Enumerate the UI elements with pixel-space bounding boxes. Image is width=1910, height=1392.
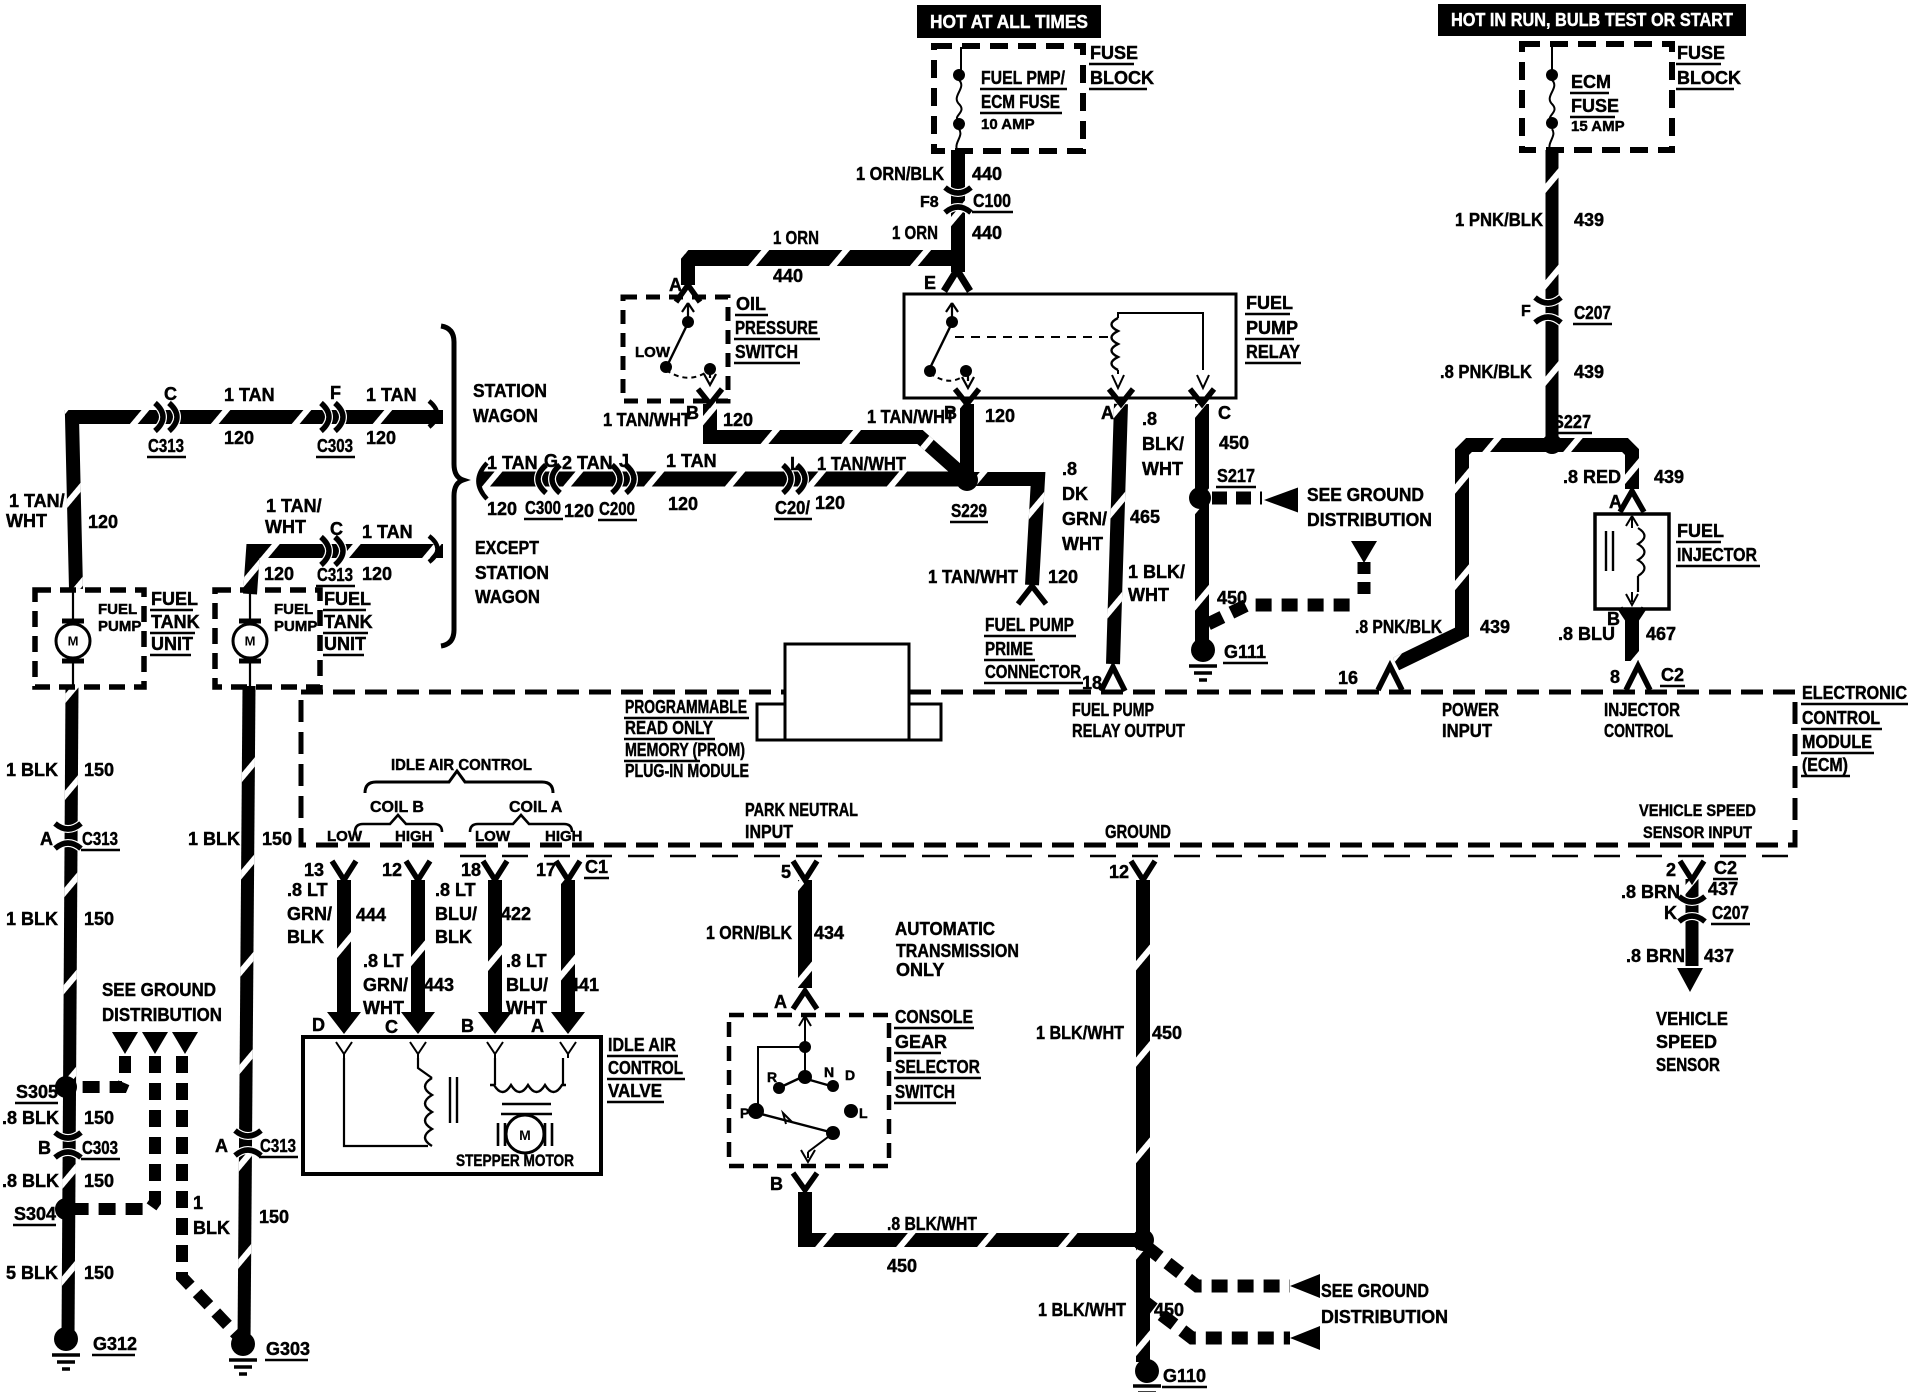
- svg-text:B: B: [461, 1016, 474, 1036]
- svg-text:GRN/: GRN/: [1062, 509, 1107, 529]
- svg-text:SEE GROUND: SEE GROUND: [102, 980, 216, 1000]
- svg-text:HIGH: HIGH: [545, 828, 583, 845]
- svg-text:.8 LT: .8 LT: [363, 951, 404, 971]
- svg-text:120: 120: [1048, 567, 1078, 587]
- svg-text:S227: S227: [1553, 412, 1591, 432]
- svg-text:LOW: LOW: [327, 828, 363, 845]
- svg-text:A: A: [669, 275, 682, 295]
- svg-text:BLK: BLK: [435, 927, 472, 947]
- svg-text:A: A: [215, 1136, 228, 1156]
- svg-text:WAGON: WAGON: [473, 406, 538, 426]
- svg-text:1: 1: [193, 1193, 203, 1213]
- svg-text:STATION: STATION: [475, 563, 549, 583]
- svg-text:E: E: [924, 273, 936, 293]
- svg-text:DISTRIBUTION: DISTRIBUTION: [1307, 510, 1432, 530]
- svg-text:IDLE AIR CONTROL: IDLE AIR CONTROL: [391, 757, 532, 774]
- svg-text:120: 120: [88, 512, 118, 532]
- svg-text:1 BLK: 1 BLK: [188, 829, 240, 849]
- svg-text:FUEL: FUEL: [1246, 293, 1293, 313]
- svg-text:1 TAN/WHT: 1 TAN/WHT: [817, 454, 906, 474]
- svg-text:CONTROL: CONTROL: [608, 1058, 683, 1078]
- svg-text:PROGRAMMABLE: PROGRAMMABLE: [625, 697, 747, 717]
- svg-text:1 TAN/WHT: 1 TAN/WHT: [867, 407, 955, 427]
- svg-text:439: 439: [1480, 617, 1510, 637]
- svg-text:.8: .8: [1142, 409, 1157, 429]
- svg-text:.8 BLK: .8 BLK: [2, 1171, 59, 1191]
- svg-text:17: 17: [536, 860, 556, 880]
- svg-text:120: 120: [366, 428, 396, 448]
- svg-text:ELECTRONIC: ELECTRONIC: [1802, 683, 1907, 703]
- svg-text:12: 12: [382, 860, 402, 880]
- svg-text:FUEL PUMP: FUEL PUMP: [1072, 700, 1154, 720]
- svg-text:1 BLK: 1 BLK: [6, 760, 58, 780]
- svg-text:.8 LT: .8 LT: [435, 880, 476, 900]
- svg-text:HIGH: HIGH: [395, 828, 433, 845]
- svg-text:L: L: [859, 1105, 868, 1121]
- svg-text:AUTOMATIC: AUTOMATIC: [895, 919, 995, 939]
- svg-text:M: M: [245, 634, 256, 649]
- svg-text:BLU/: BLU/: [506, 975, 548, 995]
- svg-text:F: F: [330, 383, 341, 403]
- svg-text:PRIME: PRIME: [985, 639, 1033, 659]
- svg-text:F: F: [1521, 303, 1531, 320]
- svg-text:C: C: [385, 1017, 398, 1037]
- svg-text:1 ORN: 1 ORN: [892, 223, 938, 243]
- svg-text:INPUT: INPUT: [1442, 721, 1492, 741]
- svg-text:C207: C207: [1574, 303, 1611, 323]
- svg-text:C313: C313: [260, 1136, 296, 1156]
- svg-text:.8 BLK: .8 BLK: [2, 1108, 59, 1128]
- svg-text:.8 LT: .8 LT: [506, 951, 547, 971]
- svg-text:M: M: [519, 1127, 531, 1143]
- svg-text:18: 18: [1082, 673, 1102, 693]
- svg-text:120: 120: [264, 564, 294, 584]
- svg-text:L: L: [790, 454, 801, 474]
- svg-text:BLK/: BLK/: [1142, 434, 1184, 454]
- svg-text:STATION: STATION: [473, 381, 547, 401]
- svg-text:SELECTOR: SELECTOR: [895, 1057, 980, 1077]
- svg-text:S217: S217: [1217, 466, 1255, 486]
- svg-text:D: D: [845, 1067, 855, 1083]
- svg-text:439: 439: [1574, 210, 1604, 230]
- svg-text:10 AMP: 10 AMP: [981, 116, 1035, 133]
- svg-text:FUEL PMP/: FUEL PMP/: [981, 68, 1065, 88]
- svg-text:SPEED: SPEED: [1656, 1032, 1717, 1052]
- svg-text:S304: S304: [14, 1204, 56, 1224]
- svg-text:450: 450: [1152, 1023, 1182, 1043]
- svg-text:120: 120: [487, 499, 517, 519]
- svg-text:VEHICLE: VEHICLE: [1656, 1009, 1728, 1029]
- svg-text:C313: C313: [82, 829, 118, 849]
- svg-text:440: 440: [773, 266, 803, 286]
- svg-text:.8: .8: [1062, 459, 1077, 479]
- svg-text:WHT: WHT: [6, 511, 47, 531]
- svg-text:WHT: WHT: [363, 998, 404, 1018]
- svg-text:UNIT: UNIT: [151, 634, 193, 654]
- svg-text:PUMP: PUMP: [1246, 318, 1298, 338]
- svg-text:C: C: [164, 384, 177, 404]
- svg-text:1 PNK/BLK: 1 PNK/BLK: [1455, 210, 1543, 230]
- svg-text:16: 16: [1338, 668, 1358, 688]
- svg-text:CONSOLE: CONSOLE: [895, 1007, 973, 1027]
- svg-text:BLOCK: BLOCK: [1677, 68, 1741, 88]
- svg-text:120: 120: [668, 494, 698, 514]
- svg-text:PARK NEUTRAL: PARK NEUTRAL: [745, 800, 858, 820]
- svg-text:TANK: TANK: [324, 612, 373, 632]
- svg-text:C303: C303: [82, 1138, 118, 1158]
- svg-text:LOW: LOW: [475, 828, 511, 845]
- svg-text:1 TAN/WHT: 1 TAN/WHT: [928, 567, 1018, 587]
- svg-text:150: 150: [84, 909, 114, 929]
- svg-text:UNIT: UNIT: [324, 634, 366, 654]
- svg-text:1 ORN: 1 ORN: [773, 228, 819, 248]
- svg-text:HOT AT ALL TIMES: HOT AT ALL TIMES: [930, 11, 1088, 32]
- svg-text:K: K: [1664, 903, 1677, 923]
- svg-text:C200: C200: [599, 499, 635, 519]
- svg-text:1 ORN/BLK: 1 ORN/BLK: [706, 923, 792, 943]
- svg-text:1 TAN: 1 TAN: [666, 451, 717, 471]
- svg-text:CONTROL: CONTROL: [1802, 708, 1880, 728]
- svg-text:PUMP: PUMP: [274, 618, 317, 635]
- svg-text:BLK: BLK: [287, 927, 324, 947]
- svg-text:444: 444: [356, 905, 386, 925]
- svg-text:1 TAN/: 1 TAN/: [266, 496, 322, 516]
- svg-text:150: 150: [84, 760, 114, 780]
- svg-text:FUEL: FUEL: [274, 601, 313, 618]
- svg-text:150: 150: [84, 1171, 114, 1191]
- svg-text:.8 RED: .8 RED: [1563, 467, 1621, 487]
- svg-text:120: 120: [362, 564, 392, 584]
- svg-text:WHT: WHT: [1142, 459, 1183, 479]
- svg-text:ECM: ECM: [1571, 72, 1611, 92]
- svg-text:SEE GROUND: SEE GROUND: [1307, 485, 1424, 505]
- svg-text:(ECM): (ECM): [1802, 755, 1848, 775]
- svg-text:DK: DK: [1062, 484, 1088, 504]
- svg-text:439: 439: [1654, 467, 1684, 487]
- svg-text:1 TAN/: 1 TAN/: [9, 491, 65, 511]
- svg-text:INJECTOR: INJECTOR: [1604, 700, 1680, 720]
- svg-text:441: 441: [569, 975, 599, 995]
- svg-text:C300: C300: [525, 498, 561, 518]
- svg-text:18: 18: [461, 860, 481, 880]
- svg-text:2 TAN: 2 TAN: [562, 453, 613, 473]
- svg-text:150: 150: [84, 1263, 114, 1283]
- svg-text:150: 150: [259, 1207, 289, 1227]
- svg-text:S305: S305: [16, 1082, 58, 1102]
- svg-text:FUSE: FUSE: [1090, 43, 1138, 63]
- svg-text:BLOCK: BLOCK: [1090, 68, 1154, 88]
- svg-text:OIL: OIL: [736, 294, 766, 314]
- svg-text:HOT IN RUN, BULB TEST OR START: HOT IN RUN, BULB TEST OR START: [1451, 9, 1734, 30]
- svg-text:A: A: [531, 1016, 544, 1036]
- svg-text:WHT: WHT: [506, 998, 547, 1018]
- svg-text:1 TAN: 1 TAN: [366, 385, 417, 405]
- svg-text:.8 LT: .8 LT: [287, 880, 328, 900]
- svg-text:A: A: [1101, 403, 1114, 423]
- svg-text:DISTRIBUTION: DISTRIBUTION: [102, 1005, 222, 1025]
- svg-text:GROUND: GROUND: [1105, 822, 1171, 842]
- svg-text:13: 13: [304, 860, 324, 880]
- svg-text:.8 BLK/WHT: .8 BLK/WHT: [887, 1214, 977, 1234]
- svg-text:437: 437: [1708, 879, 1738, 899]
- svg-text:WHT: WHT: [1062, 534, 1103, 554]
- svg-text:ECM FUSE: ECM FUSE: [981, 92, 1060, 112]
- svg-text:120: 120: [985, 406, 1015, 426]
- svg-text:PLUG-IN MODULE: PLUG-IN MODULE: [625, 761, 749, 781]
- svg-text:437: 437: [1704, 946, 1734, 966]
- svg-text:B: B: [770, 1174, 783, 1194]
- svg-text:COIL A: COIL A: [509, 799, 563, 816]
- svg-text:G303: G303: [266, 1339, 310, 1359]
- svg-text:465: 465: [1130, 507, 1160, 527]
- svg-text:.8 BRN: .8 BRN: [1626, 946, 1685, 966]
- svg-text:440: 440: [972, 164, 1002, 184]
- svg-text:ONLY: ONLY: [896, 960, 944, 980]
- svg-text:440: 440: [972, 223, 1002, 243]
- svg-text:PUMP: PUMP: [98, 618, 141, 635]
- svg-text:VEHICLE SPEED: VEHICLE SPEED: [1639, 801, 1756, 820]
- svg-text:SWITCH: SWITCH: [735, 342, 798, 362]
- svg-text:1 BLK/: 1 BLK/: [1128, 562, 1185, 582]
- svg-text:A: A: [40, 829, 53, 849]
- svg-text:INPUT: INPUT: [745, 822, 793, 842]
- svg-text:F8: F8: [920, 194, 939, 211]
- svg-text:WAGON: WAGON: [475, 587, 540, 607]
- svg-text:PRESSURE: PRESSURE: [735, 318, 818, 338]
- svg-text:SEE GROUND: SEE GROUND: [1321, 1281, 1429, 1301]
- svg-text:GRN/: GRN/: [363, 975, 408, 995]
- svg-text:C313: C313: [148, 436, 184, 456]
- svg-text:434: 434: [814, 923, 844, 943]
- svg-text:120: 120: [564, 501, 594, 521]
- svg-text:POWER: POWER: [1442, 700, 1499, 720]
- svg-text:VALVE: VALVE: [608, 1081, 662, 1101]
- svg-text:FUEL: FUEL: [324, 589, 371, 609]
- svg-text:120: 120: [723, 410, 753, 430]
- svg-text:FUSE: FUSE: [1677, 43, 1725, 63]
- svg-text:120: 120: [815, 493, 845, 513]
- svg-text:C: C: [1218, 403, 1231, 423]
- svg-text:1 TAN: 1 TAN: [224, 385, 275, 405]
- svg-text:C207: C207: [1712, 903, 1749, 923]
- svg-text:GEAR: GEAR: [895, 1032, 947, 1052]
- svg-text:FUSE: FUSE: [1571, 96, 1619, 116]
- svg-text:GRN/: GRN/: [287, 904, 332, 924]
- svg-text:C313: C313: [317, 565, 353, 585]
- svg-text:1 BLK/WHT: 1 BLK/WHT: [1036, 1023, 1124, 1043]
- svg-text:M: M: [68, 634, 79, 649]
- svg-text:FUEL: FUEL: [1677, 521, 1724, 541]
- svg-text:439: 439: [1574, 362, 1604, 382]
- svg-text:1 ORN/BLK: 1 ORN/BLK: [856, 164, 944, 184]
- svg-text:J: J: [619, 451, 629, 471]
- svg-text:150: 150: [84, 1108, 114, 1128]
- svg-text:.8 BLU: .8 BLU: [1558, 624, 1615, 644]
- svg-text:450: 450: [1219, 433, 1249, 453]
- svg-text:FUEL: FUEL: [151, 589, 198, 609]
- svg-text:C1: C1: [585, 857, 608, 877]
- svg-text:SENSOR INPUT: SENSOR INPUT: [1643, 823, 1753, 842]
- svg-text:SWITCH: SWITCH: [895, 1082, 955, 1102]
- svg-text:15 AMP: 15 AMP: [1571, 118, 1625, 135]
- svg-text:8: 8: [1610, 667, 1620, 687]
- svg-text:.8 PNK/BLK: .8 PNK/BLK: [1440, 362, 1532, 382]
- svg-text:IDLE AIR: IDLE AIR: [608, 1035, 676, 1055]
- svg-text:G110: G110: [1163, 1366, 1206, 1386]
- svg-text:BLK: BLK: [193, 1218, 230, 1238]
- svg-text:S229: S229: [951, 501, 987, 521]
- svg-text:.8 BRN: .8 BRN: [1621, 882, 1680, 902]
- svg-text:D: D: [312, 1015, 325, 1035]
- svg-text:STEPPER MOTOR: STEPPER MOTOR: [456, 1151, 574, 1170]
- svg-text:P: P: [740, 1105, 749, 1121]
- svg-text:MEMORY (PROM): MEMORY (PROM): [625, 740, 745, 760]
- svg-text:1 TAN: 1 TAN: [487, 453, 538, 473]
- svg-text:C2: C2: [1714, 858, 1737, 878]
- svg-text:EXCEPT: EXCEPT: [475, 538, 539, 558]
- svg-text:FUEL: FUEL: [98, 601, 137, 618]
- svg-text:INJECTOR: INJECTOR: [1677, 545, 1757, 565]
- svg-text:G312: G312: [93, 1334, 137, 1354]
- svg-text:450: 450: [1217, 588, 1247, 608]
- svg-text:C100: C100: [973, 191, 1011, 211]
- svg-text:422: 422: [501, 904, 531, 924]
- svg-text:450: 450: [1154, 1300, 1184, 1320]
- svg-text:A: A: [774, 992, 787, 1012]
- svg-text:RELAY: RELAY: [1246, 342, 1300, 362]
- svg-text:SENSOR: SENSOR: [1656, 1055, 1720, 1075]
- svg-text:5: 5: [781, 862, 791, 882]
- svg-text:LOW: LOW: [635, 344, 671, 361]
- svg-text:RELAY OUTPUT: RELAY OUTPUT: [1072, 721, 1185, 741]
- svg-text:FUEL PUMP: FUEL PUMP: [985, 615, 1074, 635]
- svg-text:WHT: WHT: [265, 517, 306, 537]
- svg-text:COIL B: COIL B: [370, 799, 424, 816]
- svg-text:MODULE: MODULE: [1802, 732, 1872, 752]
- svg-text:CONTROL: CONTROL: [1604, 721, 1673, 741]
- svg-text:5 BLK: 5 BLK: [6, 1263, 58, 1283]
- svg-text:WHT: WHT: [1128, 585, 1169, 605]
- svg-text:TANK: TANK: [151, 612, 200, 632]
- svg-text:DISTRIBUTION: DISTRIBUTION: [1321, 1307, 1448, 1327]
- svg-text:C2: C2: [1661, 665, 1684, 685]
- svg-text:1 TAN/WHT: 1 TAN/WHT: [603, 410, 691, 430]
- svg-text:READ ONLY: READ ONLY: [625, 718, 713, 738]
- svg-text:CONNECTOR: CONNECTOR: [985, 662, 1081, 682]
- svg-text:2: 2: [1666, 860, 1676, 880]
- svg-text:N: N: [824, 1064, 834, 1080]
- svg-text:1 BLK/WHT: 1 BLK/WHT: [1038, 1300, 1126, 1320]
- svg-text:R: R: [767, 1069, 777, 1085]
- svg-text:1 BLK: 1 BLK: [6, 909, 58, 929]
- svg-text:G111: G111: [1224, 642, 1266, 662]
- svg-text:TRANSMISSION: TRANSMISSION: [896, 941, 1019, 961]
- svg-text:C20/: C20/: [775, 498, 810, 518]
- svg-text:120: 120: [224, 428, 254, 448]
- svg-text:467: 467: [1646, 624, 1676, 644]
- svg-text:C: C: [330, 519, 343, 539]
- svg-text:12: 12: [1109, 862, 1129, 882]
- svg-text:443: 443: [424, 975, 454, 995]
- svg-text:B: B: [38, 1138, 51, 1158]
- svg-text:1 TAN: 1 TAN: [362, 522, 413, 542]
- svg-text:BLU/: BLU/: [435, 904, 477, 924]
- svg-text:G: G: [544, 451, 558, 471]
- svg-text:.8 PNK/BLK: .8 PNK/BLK: [1355, 617, 1442, 637]
- svg-text:A: A: [1609, 492, 1622, 512]
- svg-text:C303: C303: [317, 436, 353, 456]
- svg-text:150: 150: [262, 829, 292, 849]
- svg-text:450: 450: [887, 1256, 917, 1276]
